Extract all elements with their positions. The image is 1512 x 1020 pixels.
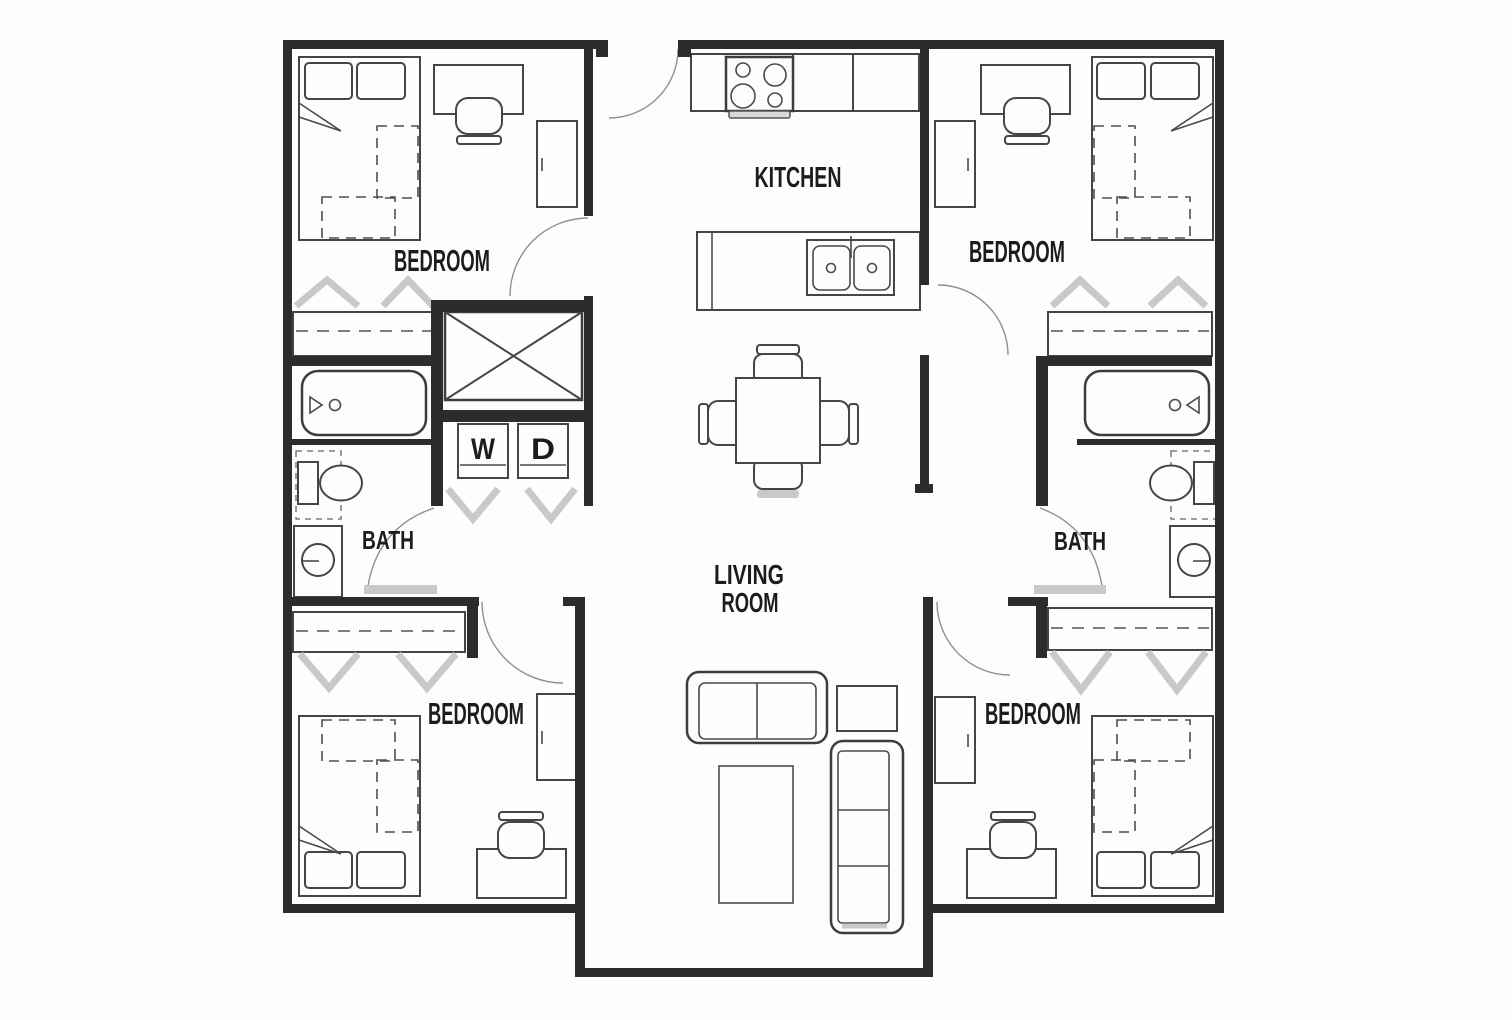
- wall-spine-left-mid: [584, 296, 593, 506]
- wall-top-left: [283, 40, 608, 49]
- wall-left: [283, 40, 292, 913]
- dining-chair-back: [757, 345, 799, 354]
- label-bedroom-bottom-right: BEDROOM: [985, 696, 1081, 731]
- label-living-room-line2: ROOM: [722, 587, 779, 618]
- dining-set: [699, 345, 858, 498]
- label-bedroom-top-left: BEDROOM: [394, 243, 490, 278]
- dining-chair-back: [757, 490, 799, 498]
- desk-chair-seat-bar: [499, 812, 543, 820]
- floor-plan-svg: BEDROOM BEDROOM KITCHEN BATH BATH LIVING…: [0, 0, 1512, 1020]
- wall-spine-left-upper: [584, 49, 593, 216]
- wall-spine-right-upper: [920, 44, 929, 285]
- toilet-tank: [1194, 462, 1214, 504]
- wall-jamb: [563, 597, 585, 606]
- label-bath-left: BATH: [362, 525, 414, 555]
- bath-door-leaf: [1034, 585, 1106, 594]
- bath-door-leaf: [364, 585, 437, 594]
- wall-stub: [467, 606, 478, 658]
- wall-spine-right-mid: [920, 355, 929, 493]
- sofa: [831, 741, 903, 933]
- label-living-room-line1: LIVING: [714, 559, 784, 590]
- closet-shelf: [1048, 312, 1212, 356]
- pillow: [1151, 852, 1199, 888]
- bedroom-bottom-right-furniture: [935, 608, 1213, 898]
- side-table: [837, 686, 897, 731]
- wall-tub-left: [290, 439, 431, 445]
- hanger-chevron-icon: [1052, 652, 1110, 690]
- wall-top-right: [678, 40, 1224, 49]
- toilet-bowl: [1150, 466, 1192, 501]
- closet-shelf: [293, 612, 465, 652]
- dining-table: [736, 378, 820, 463]
- wall-bath-left-top: [290, 356, 433, 366]
- dining-chair-back: [699, 404, 708, 444]
- bedroom-door-arc: [938, 285, 1008, 355]
- wall-tub-right: [1077, 439, 1217, 445]
- hanger-chevron-icon: [300, 654, 358, 688]
- wall-laundry-top: [431, 300, 593, 312]
- laundry-closet: [445, 312, 582, 478]
- living-room-furniture: [687, 672, 903, 933]
- desk-chair-seat-bar: [457, 136, 501, 144]
- stove-front-lip: [729, 111, 790, 118]
- wall-hall-left: [283, 597, 479, 606]
- closet-shelf: [1048, 608, 1212, 650]
- wall-bottom-left: [283, 904, 584, 913]
- label-washer: W: [471, 433, 496, 466]
- toilet-tank: [298, 462, 318, 504]
- wall-right: [1215, 40, 1224, 913]
- coffee-table: [719, 766, 793, 903]
- bifold-door-icon: [527, 489, 575, 519]
- vanity-sink: [302, 544, 334, 576]
- wall-bottom-right: [923, 904, 1224, 913]
- bifold-door-icon: [448, 489, 498, 519]
- pillow: [357, 63, 405, 99]
- pillow: [1097, 63, 1145, 99]
- bath-left-fixtures: [294, 371, 426, 597]
- wall-jamb: [1008, 597, 1048, 606]
- desk-chair: [1004, 98, 1050, 134]
- bathtub: [302, 371, 426, 435]
- walls: [283, 40, 1224, 977]
- hanger-chevron-icon: [296, 280, 358, 306]
- desk-chair: [498, 822, 544, 858]
- desk-chair-seat-bar: [991, 812, 1035, 820]
- bedroom-door-arc: [937, 602, 1010, 675]
- desk-chair: [456, 98, 502, 134]
- pillow: [305, 852, 352, 888]
- label-bedroom-bottom-left: BEDROOM: [428, 696, 524, 731]
- entry-door-arc: [609, 49, 678, 118]
- floor-plan-page: BEDROOM BEDROOM KITCHEN BATH BATH LIVING…: [0, 0, 1512, 1020]
- wall-cap: [915, 484, 933, 493]
- label-bedroom-top-right: BEDROOM: [969, 234, 1065, 269]
- wall-living-bottom: [575, 968, 933, 977]
- desk-chair-seat-bar: [1005, 136, 1049, 144]
- bedroom-door-arc: [510, 218, 588, 296]
- wardrobe: [935, 697, 975, 783]
- wall-living-right: [923, 597, 933, 977]
- bedroom-door-arc: [482, 602, 563, 683]
- pillow: [305, 63, 352, 99]
- wardrobe: [537, 121, 577, 207]
- bath-right-fixtures: [1085, 371, 1218, 597]
- wardrobe: [935, 121, 975, 207]
- dining-chair-back: [849, 404, 858, 444]
- wall-laundry-mid: [443, 410, 593, 422]
- desk-chair: [990, 822, 1036, 858]
- hanger-chevron-icon: [398, 654, 456, 688]
- pillow: [1151, 63, 1199, 99]
- vanity-sink: [1178, 544, 1210, 576]
- bedroom-bottom-left-furniture: [293, 612, 577, 898]
- hanger-chevron-icon: [1148, 652, 1206, 690]
- label-dryer: D: [531, 433, 555, 466]
- hanger-chevron-icon: [383, 280, 433, 306]
- wall-stub: [1036, 606, 1047, 658]
- wall-bath-right-top: [1046, 356, 1212, 366]
- hanger-chevron-icon: [1052, 280, 1108, 306]
- wall-cap: [596, 40, 608, 57]
- bedroom-top-right-furniture: [935, 57, 1213, 356]
- wall-living-left: [575, 597, 585, 977]
- hanger-chevron-icon: [1150, 280, 1206, 306]
- closet-shelf: [293, 312, 435, 356]
- label-bath-right: BATH: [1054, 526, 1106, 556]
- label-kitchen: KITCHEN: [755, 162, 842, 194]
- stove: [726, 57, 793, 111]
- pillow: [1097, 852, 1145, 888]
- wall-laundry-left: [431, 300, 443, 506]
- wardrobe: [537, 694, 577, 780]
- pillow: [357, 852, 405, 888]
- wall-bath-right-left: [1036, 356, 1048, 506]
- toilet-bowl: [320, 466, 362, 501]
